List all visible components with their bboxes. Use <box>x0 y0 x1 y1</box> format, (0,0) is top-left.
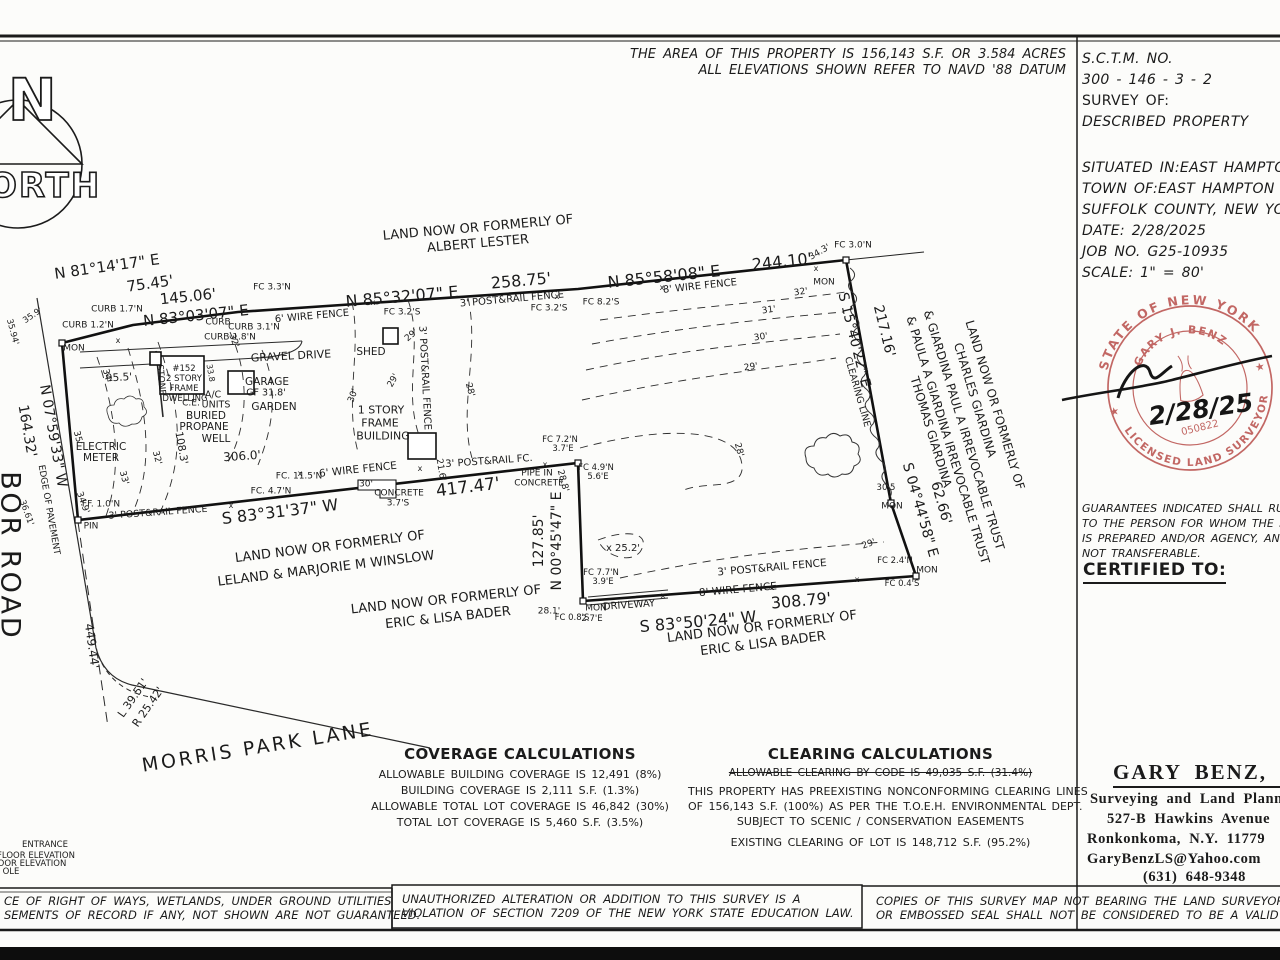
surveyor-line: Surveying and Land Planning <box>1090 791 1280 808</box>
area-note-line: THE AREA OF THIS PROPERTY IS 156,143 S.F… <box>630 47 1066 63</box>
map-label: 6' WIRE FENCE <box>319 461 398 480</box>
coverage-line: TOTAL LOT COVERAGE IS 5,460 S.F. (3.5%) <box>370 816 670 829</box>
map-label: MON <box>813 279 835 288</box>
map-label: 35' <box>71 430 83 446</box>
map-label: METER <box>83 453 119 464</box>
job-number: JOB NO. G25-10935 <box>1082 244 1228 260</box>
map-label: PIPE IN <box>521 470 552 479</box>
map-label: 244.10' <box>751 251 813 273</box>
survey-sheet: N ORTH <box>0 0 1280 960</box>
map-label: x <box>371 299 376 307</box>
map-label: 449.44' <box>83 623 101 670</box>
map-label: 29' <box>861 538 877 551</box>
map-label: x <box>543 461 548 469</box>
sctm-label: S.C.T.M. NO. <box>1082 51 1173 67</box>
map-label: 34.3' <box>808 243 832 262</box>
map-label: UNITS <box>202 400 231 410</box>
county: SUFFOLK COUNTY, NEW YORK <box>1082 202 1280 218</box>
map-label: MON <box>916 567 938 576</box>
map-label: GARDEN <box>251 402 296 413</box>
map-label: BURIED <box>186 411 226 422</box>
sctm-value: 300 - 146 - 3 - 2 <box>1082 72 1212 88</box>
guarantee-line: GUARANTEES INDICATED SHALL RUN ONLY <box>1082 502 1280 516</box>
map-label: S 83°31'37" W <box>221 497 339 527</box>
map-label: MON <box>63 345 85 354</box>
map-label: x <box>661 592 666 600</box>
road-name-morris-park-lane: MORRIS PARK LANE <box>141 720 376 775</box>
clearing-line-text: OF 156,143 S.F. (100%) AS PER THE T.O.E.… <box>688 800 1073 813</box>
map-label: 34' <box>100 368 112 384</box>
map-label: 35.9' <box>22 306 44 325</box>
map-label: WELL <box>202 434 231 445</box>
datum-note-line: ALL ELEVATIONS SHOWN REFER TO NAVD '88 D… <box>630 63 1066 79</box>
map-label: FC 0.4'S <box>885 580 920 589</box>
map-label: C.E. <box>182 400 200 409</box>
map-label: 30' <box>347 388 360 404</box>
certified-to-heading: CERTIFIED TO: <box>1083 560 1226 584</box>
map-label: 33.8 <box>205 364 216 383</box>
map-label: STONE <box>154 364 166 395</box>
map-label: 217.16' <box>871 304 897 359</box>
guarantee-line: NOT TRANSFERABLE. <box>1082 547 1201 561</box>
map-label: 29' <box>387 373 402 390</box>
map-label: 30' <box>753 333 768 344</box>
map-label: #152 <box>172 365 195 374</box>
coverage-calculations: COVERAGE CALCULATIONS ALLOWABLE BUILDING… <box>370 745 670 829</box>
map-label: BUILDING <box>356 431 409 442</box>
map-label: x <box>418 465 423 473</box>
survey-date: DATE: 2/28/2025 <box>1082 223 1206 239</box>
map-label: x <box>555 293 560 301</box>
legend-fragment: OLE <box>3 868 20 877</box>
map-label: MON <box>881 503 903 512</box>
map-label: 3' POST&RAIL FENCE <box>717 558 827 578</box>
map-label: GRAVEL DRIVE <box>251 348 332 363</box>
map-label: FRAME <box>361 418 399 429</box>
coverage-line: ALLOWABLE TOTAL LOT COVERAGE IS 46,842 (… <box>370 800 670 813</box>
road-name-harbor-road: BOR ROAD <box>0 471 24 640</box>
map-label: GF 31.8' <box>246 388 286 398</box>
note-line: OR EMBOSSED SEAL SHALL NOT BE CONSIDERED… <box>876 908 1280 922</box>
clearing-struck-line: ALLOWABLE CLEARING BY CODE IS 49,035 S.F… <box>688 767 1073 779</box>
map-label: FC 3.2'S <box>384 309 421 318</box>
note-line: VIOLATION OF SECTION 7209 OF THE NEW YOR… <box>402 906 854 920</box>
map-label: CURB 3.1'N <box>228 324 280 333</box>
map-label: N 85°32'07" E <box>345 284 459 310</box>
map-label: 306.0' <box>223 449 261 464</box>
map-label: CONCRETE <box>374 490 424 499</box>
map-label: FC 8.2'S <box>583 299 620 308</box>
note-line: UNAUTHORIZED ALTERATION OR ADDITION TO T… <box>402 892 800 906</box>
map-label: FRAME <box>170 385 199 394</box>
note-line: SEMENTS OF RECORD IF ANY, NOT SHOWN ARE … <box>4 908 420 922</box>
surveyor-email: GaryBenzLS@Yahoo.com <box>1087 851 1261 868</box>
map-label: GARAGE <box>245 377 289 388</box>
coverage-line: BUILDING COVERAGE IS 2,111 S.F. (1.3%) <box>370 784 670 797</box>
map-label: N 00°45'47" E <box>550 492 564 591</box>
map-label: 6' WIRE FENCE <box>274 309 349 325</box>
map-label: FC 2.4'N <box>877 557 913 566</box>
map-label: 28' <box>732 442 744 458</box>
clearing-calculations: CLEARING CALCULATIONS ALLOWABLE CLEARING… <box>688 745 1073 849</box>
survey-of-value: DESCRIBED PROPERTY <box>1082 114 1249 130</box>
map-label: x <box>298 470 303 478</box>
map-label: 3' POST&RAIL FENCE <box>108 505 208 521</box>
coverage-line: ALLOWABLE BUILDING COVERAGE IS 12,491 (8… <box>370 768 670 781</box>
map-label: CURB <box>205 319 230 328</box>
map-label: x <box>770 584 775 592</box>
map-label: 3' POST&RAIL FC. <box>445 454 533 470</box>
town-of: TOWN OF:EAST HAMPTON <box>1082 181 1275 197</box>
map-label: x <box>814 265 819 273</box>
map-label: FC. 4.7'N <box>251 488 292 497</box>
map-label: PROPANE <box>179 422 228 433</box>
clearing-line-text: THIS PROPERTY HAS PREEXISTING NONCONFORM… <box>688 785 1073 798</box>
clearing-existing-line: EXISTING CLEARING OF LOT IS 148,712 S.F.… <box>688 836 1073 849</box>
map-label: x <box>855 576 860 584</box>
legend-fragment: ENTRANCE <box>22 841 68 850</box>
map-label: CURB 1.2'N <box>62 322 114 331</box>
area-notes: THE AREA OF THIS PROPERTY IS 156,143 S.F… <box>630 47 1066 79</box>
map-label: 308.79' <box>770 590 832 611</box>
clearing-title: CLEARING CALCULATIONS <box>688 745 1073 763</box>
clearing-line-text: SUBJECT TO SCENIC / CONSERVATION EASEMEN… <box>688 815 1073 828</box>
map-label: 127.85' <box>532 515 546 568</box>
map-label: 3.7'S <box>387 500 410 509</box>
map-label: FC 3.3'N <box>253 284 291 293</box>
map-label: 3.7'E <box>552 445 573 454</box>
map-label: 2 STORY <box>166 375 202 384</box>
map-label: FC 3.0'N <box>834 242 872 251</box>
map-label: 1 STORY <box>358 405 405 416</box>
map-label: 5.6'E <box>587 473 608 482</box>
note-line: COPIES OF THIS SURVEY MAP NOT BEARING TH… <box>876 894 1280 908</box>
map-label: 3.9'E <box>592 578 613 587</box>
situated-in: SITUATED IN:EAST HAMPTON <box>1082 160 1280 176</box>
map-label: 3' POST&RAIL FENCE <box>416 326 431 431</box>
guarantee-line: TO THE PERSON FOR WHOM THE SURVEY <box>1082 517 1280 531</box>
map-label: x 25.2' <box>606 544 640 554</box>
map-label: 32' <box>150 450 162 466</box>
survey-of-label: SURVEY OF: <box>1082 93 1169 109</box>
coverage-title: COVERAGE CALCULATIONS <box>370 745 670 763</box>
surveyor-line: 527-B Hawkins Avenue <box>1107 811 1270 828</box>
map-label: x <box>229 502 234 510</box>
map-label: 28.8' <box>555 469 570 493</box>
map-label: FC 3.2'S <box>531 305 568 314</box>
surveyor-phone: (631) 648-9348 <box>1143 869 1246 886</box>
scale: SCALE: 1" = 80' <box>1082 265 1204 281</box>
map-label: 28' <box>463 382 475 398</box>
map-label: FF. 1.0'N <box>82 501 120 510</box>
surveyor-name: GARY BENZ, L.S. <box>1113 760 1280 788</box>
note-line: CE OF RIGHT OF WAYS, WETLANDS, UNDER GRO… <box>4 894 391 908</box>
map-label: x <box>660 284 665 292</box>
map-label: 258.75' <box>490 270 552 291</box>
map-label: 108.3' <box>173 431 189 465</box>
surveyor-line: Ronkonkoma, N.Y. 11779 <box>1087 831 1265 848</box>
map-label: 30.5 <box>877 484 896 493</box>
map-label: 29' <box>743 363 758 374</box>
map-label: x <box>116 337 121 345</box>
map-label: 30' <box>359 481 373 490</box>
map-label: DRIVEWAY <box>603 599 656 613</box>
map-label: SHED <box>356 347 385 358</box>
map-label: 8' WIRE FENCE <box>699 581 778 598</box>
map-label: MON <box>585 605 607 614</box>
map-label: 2.7'E <box>581 615 602 624</box>
map-label: 33' <box>117 470 129 486</box>
map-label: 31' <box>761 306 776 317</box>
guarantee-line: IS PREPARED AND/OR AGENCY, AND IS <box>1082 532 1280 546</box>
map-label: 32' <box>793 288 808 299</box>
map-label: 35.94' <box>4 318 19 346</box>
map-label: 164.32' <box>16 404 39 458</box>
map-label: PIN <box>84 523 99 532</box>
map-label: CURB 1.7'N <box>91 306 143 315</box>
